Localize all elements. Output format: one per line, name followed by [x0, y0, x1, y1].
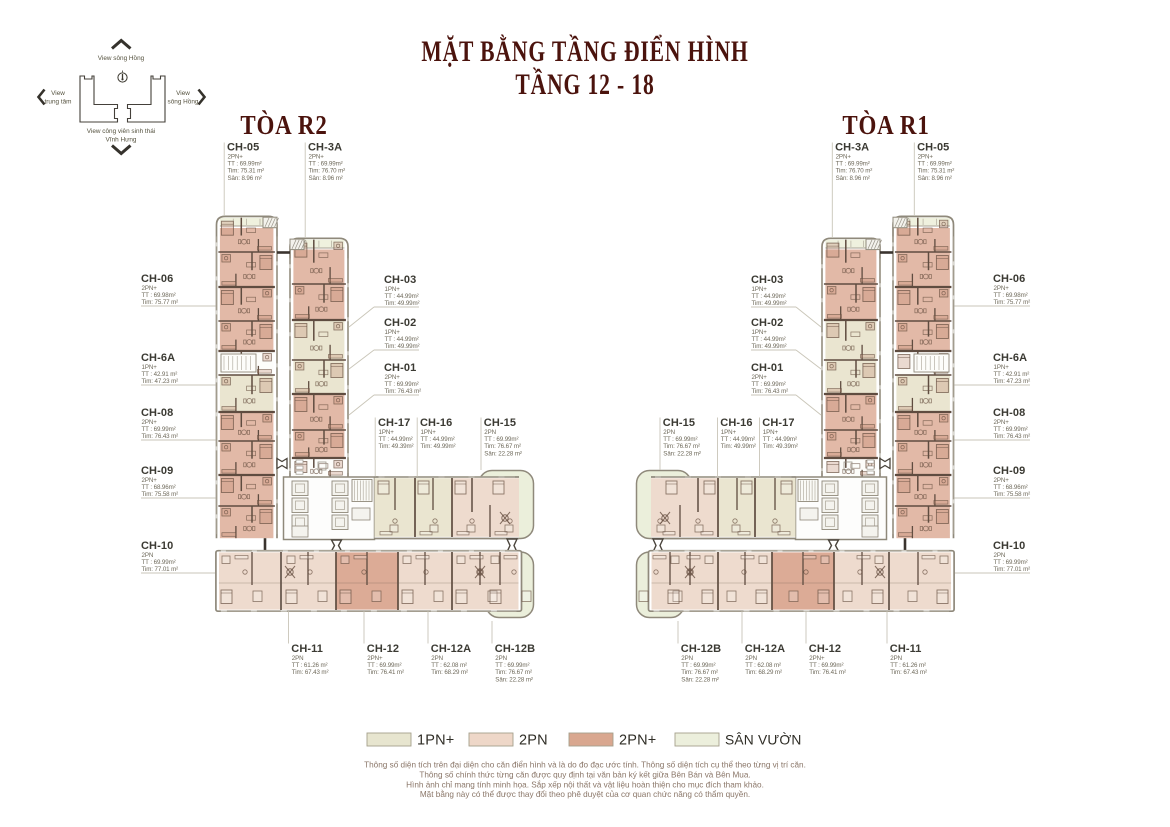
- svg-text:Tim: 76.41 m²: Tim: 76.41 m²: [367, 669, 404, 676]
- svg-text:2PN+: 2PN+: [994, 285, 1010, 292]
- svg-text:2PN: 2PN: [484, 429, 496, 436]
- svg-text:2PN+: 2PN+: [836, 153, 852, 160]
- svg-text:Thông số chính thức từng căn đ: Thông số chính thức từng căn được quy đị…: [419, 770, 750, 779]
- svg-text:TT : 69.99m²: TT : 69.99m²: [994, 426, 1028, 433]
- svg-text:TT : 69.99m²: TT : 69.99m²: [142, 559, 176, 566]
- svg-text:CH-06: CH-06: [141, 273, 173, 285]
- svg-text:CH-09: CH-09: [993, 465, 1025, 477]
- svg-text:Tim: 49.99m²: Tim: 49.99m²: [385, 300, 420, 307]
- svg-text:2PN: 2PN: [681, 655, 693, 662]
- svg-text:Tim: 76.41 m²: Tim: 76.41 m²: [809, 669, 846, 676]
- svg-text:Tim: 49.99m²: Tim: 49.99m²: [385, 343, 420, 350]
- svg-text:Tim: 75.77 m²: Tim: 75.77 m²: [142, 299, 179, 306]
- svg-text:trung tâm: trung tâm: [45, 99, 72, 106]
- svg-text:CH-16: CH-16: [720, 417, 752, 429]
- svg-text:TT : 69.99m²: TT : 69.99m²: [663, 436, 697, 443]
- svg-text:CH-12: CH-12: [809, 643, 841, 655]
- svg-text:CH-03: CH-03: [751, 274, 783, 286]
- svg-text:CH-3A: CH-3A: [835, 142, 869, 154]
- svg-text:1PN+: 1PN+: [142, 364, 158, 371]
- svg-text:CH-12A: CH-12A: [431, 643, 471, 655]
- svg-text:TT : 69.99m²: TT : 69.99m²: [752, 381, 786, 388]
- svg-text:TÒA R1: TÒA R1: [842, 110, 929, 140]
- svg-text:Tim: 76.67 m²: Tim: 76.67 m²: [663, 443, 700, 450]
- svg-text:CH-15: CH-15: [484, 417, 516, 429]
- svg-text:TT : 62.08 m²: TT : 62.08 m²: [745, 662, 781, 669]
- svg-text:1PN+: 1PN+: [721, 429, 737, 436]
- svg-text:TT : 44.99m²: TT : 44.99m²: [421, 436, 455, 443]
- svg-text:1PN+: 1PN+: [385, 286, 401, 293]
- svg-text:CH-17: CH-17: [378, 417, 410, 429]
- svg-text:TT : 69.98m²: TT : 69.98m²: [994, 292, 1028, 299]
- svg-text:Tim: 77.01 m²: Tim: 77.01 m²: [142, 566, 179, 573]
- svg-text:Tim: 76.43 m²: Tim: 76.43 m²: [142, 433, 179, 440]
- svg-text:TT : 68.96m²: TT : 68.96m²: [142, 484, 176, 491]
- svg-text:Tim: 47.23 m²: Tim: 47.23 m²: [142, 378, 179, 385]
- svg-text:TT : 42.91 m²: TT : 42.91 m²: [142, 371, 178, 378]
- svg-text:Sân: 22.28 m²: Sân: 22.28 m²: [681, 676, 719, 683]
- svg-text:CH-08: CH-08: [141, 407, 173, 419]
- svg-text:2PN: 2PN: [142, 552, 154, 559]
- svg-text:CH-01: CH-01: [751, 362, 783, 374]
- svg-text:Tim: 76.43 m²: Tim: 76.43 m²: [994, 433, 1031, 440]
- svg-text:2PN: 2PN: [745, 655, 757, 662]
- svg-text:CH-02: CH-02: [751, 317, 783, 329]
- svg-text:TT : 69.99m²: TT : 69.99m²: [385, 381, 419, 388]
- svg-text:CH-01: CH-01: [384, 362, 416, 374]
- svg-text:1PN+: 1PN+: [763, 429, 779, 436]
- svg-text:Sân: 8.96 m²: Sân: 8.96 m²: [309, 175, 343, 182]
- svg-text:Sân: 22.28 m²: Sân: 22.28 m²: [663, 450, 701, 457]
- svg-text:View sông Hồng: View sông Hồng: [98, 53, 145, 62]
- svg-text:TÒA R2: TÒA R2: [240, 110, 327, 140]
- svg-text:1PN+: 1PN+: [421, 429, 437, 436]
- svg-text:Tim: 76.70 m²: Tim: 76.70 m²: [309, 168, 346, 175]
- svg-text:TT : 44.99m²: TT : 44.99m²: [752, 293, 786, 300]
- svg-text:CH-02: CH-02: [384, 317, 416, 329]
- svg-text:sông Hồng: sông Hồng: [168, 97, 199, 106]
- svg-text:2PN+: 2PN+: [994, 419, 1010, 426]
- svg-text:2PN: 2PN: [292, 655, 304, 662]
- svg-text:TT : 44.99m²: TT : 44.99m²: [385, 336, 419, 343]
- svg-text:1PN+: 1PN+: [994, 364, 1010, 371]
- svg-text:View công viên sinh thái: View công viên sinh thái: [87, 128, 155, 135]
- svg-text:TT : 42.91 m²: TT : 42.91 m²: [994, 371, 1030, 378]
- svg-text:TT : 69.99m²: TT : 69.99m²: [495, 662, 529, 669]
- svg-text:TT : 69.99m²: TT : 69.99m²: [367, 662, 401, 669]
- svg-text:TT : 44.99m²: TT : 44.99m²: [752, 336, 786, 343]
- svg-text:Tim: 49.99m²: Tim: 49.99m²: [752, 343, 787, 350]
- svg-text:Tim: 76.70 m²: Tim: 76.70 m²: [836, 168, 873, 175]
- svg-text:Thông số diện tích trên đại di: Thông số diện tích trên đại diện cho căn…: [364, 760, 806, 770]
- svg-text:View: View: [51, 90, 65, 97]
- svg-text:2PN: 2PN: [890, 655, 902, 662]
- svg-text:CH-11: CH-11: [291, 643, 323, 655]
- svg-text:CH-03: CH-03: [384, 274, 416, 286]
- svg-text:2PN+: 2PN+: [619, 733, 656, 749]
- svg-text:Tim: 49.99m²: Tim: 49.99m²: [721, 443, 756, 450]
- svg-text:Tim: 49.99m²: Tim: 49.99m²: [421, 443, 456, 450]
- svg-text:TT : 69.99m²: TT : 69.99m²: [836, 161, 870, 168]
- svg-text:2PN: 2PN: [519, 733, 548, 749]
- svg-text:CH-06: CH-06: [993, 273, 1025, 285]
- svg-text:1PN+: 1PN+: [379, 429, 395, 436]
- svg-text:CH-12B: CH-12B: [681, 643, 721, 655]
- svg-text:Sân: 22.28 m²: Sân: 22.28 m²: [484, 450, 522, 457]
- svg-text:Tim: 75.58 m²: Tim: 75.58 m²: [994, 491, 1031, 498]
- svg-text:CH-12A: CH-12A: [745, 643, 785, 655]
- svg-text:2PN: 2PN: [495, 655, 507, 662]
- svg-text:1PN+: 1PN+: [752, 329, 768, 336]
- svg-text:Sân: 8.96 m²: Sân: 8.96 m²: [836, 175, 870, 182]
- svg-text:2PN: 2PN: [431, 655, 443, 662]
- svg-text:TT : 69.99m²: TT : 69.99m²: [994, 559, 1028, 566]
- svg-text:TT : 69.99m²: TT : 69.99m²: [484, 436, 518, 443]
- svg-text:Mặt bằng này có thể được thay: Mặt bằng này có thể được thay đổi theo p…: [420, 789, 750, 799]
- svg-text:View: View: [176, 90, 190, 97]
- svg-text:2PN+: 2PN+: [918, 153, 934, 160]
- svg-text:CH-10: CH-10: [993, 540, 1025, 552]
- svg-text:CH-6A: CH-6A: [993, 352, 1027, 364]
- svg-text:TT : 69.99m²: TT : 69.99m²: [142, 426, 176, 433]
- svg-text:Tim: 77.01 m²: Tim: 77.01 m²: [994, 566, 1031, 573]
- svg-text:Tim: 68.29 m²: Tim: 68.29 m²: [431, 669, 468, 676]
- svg-text:Tim: 75.31 m²: Tim: 75.31 m²: [918, 168, 955, 175]
- svg-text:Tim: 75.58 m²: Tim: 75.58 m²: [142, 491, 179, 498]
- svg-text:TT : 44.99m²: TT : 44.99m²: [721, 436, 755, 443]
- svg-text:TT : 44.99m²: TT : 44.99m²: [763, 436, 797, 443]
- svg-text:CH-05: CH-05: [917, 142, 949, 154]
- svg-text:TT : 44.99m²: TT : 44.99m²: [379, 436, 413, 443]
- svg-text:TT : 69.99m²: TT : 69.99m²: [809, 662, 843, 669]
- svg-text:Vĩnh Hưng: Vĩnh Hưng: [106, 137, 137, 144]
- svg-text:TT : 44.99m²: TT : 44.99m²: [385, 293, 419, 300]
- svg-text:CH-6A: CH-6A: [141, 352, 175, 364]
- svg-text:Tim: 76.67 m²: Tim: 76.67 m²: [495, 669, 532, 676]
- svg-text:TT : 69.98m²: TT : 69.98m²: [142, 292, 176, 299]
- svg-text:TT : 61.26 m²: TT : 61.26 m²: [890, 662, 926, 669]
- svg-text:Tim: 67.43 m²: Tim: 67.43 m²: [292, 669, 329, 676]
- svg-text:CH-12: CH-12: [367, 643, 399, 655]
- svg-text:SÂN VƯỜN: SÂN VƯỜN: [725, 732, 802, 748]
- svg-text:2PN+: 2PN+: [367, 655, 383, 662]
- svg-text:CH-05: CH-05: [227, 142, 259, 154]
- svg-text:Tim: 75.31 m²: Tim: 75.31 m²: [228, 168, 265, 175]
- svg-text:Tim: 76.67 m²: Tim: 76.67 m²: [484, 443, 521, 450]
- svg-text:2PN+: 2PN+: [142, 285, 158, 292]
- svg-text:2PN+: 2PN+: [809, 655, 825, 662]
- svg-text:Sân: 22.28 m²: Sân: 22.28 m²: [495, 676, 533, 683]
- svg-text:Tim: 76.67 m²: Tim: 76.67 m²: [681, 669, 718, 676]
- svg-text:1PN+: 1PN+: [417, 733, 454, 749]
- svg-text:2PN: 2PN: [994, 552, 1006, 559]
- svg-text:TT : 62.08 m²: TT : 62.08 m²: [431, 662, 467, 669]
- svg-text:Tim: 75.77 m²: Tim: 75.77 m²: [994, 299, 1031, 306]
- svg-text:TẦNG 12 - 18: TẦNG 12 - 18: [515, 68, 654, 101]
- svg-text:Sân: 8.96 m²: Sân: 8.96 m²: [228, 175, 262, 182]
- svg-text:2PN+: 2PN+: [142, 477, 158, 484]
- svg-text:2PN+: 2PN+: [752, 374, 768, 381]
- svg-text:CH-12B: CH-12B: [495, 643, 535, 655]
- svg-text:TT : 68.96m²: TT : 68.96m²: [994, 484, 1028, 491]
- svg-text:Tim: 76.43 m²: Tim: 76.43 m²: [385, 388, 422, 395]
- svg-text:2PN+: 2PN+: [228, 153, 244, 160]
- svg-text:CH-16: CH-16: [420, 417, 452, 429]
- svg-text:MẶT BẰNG TẦNG ĐIỂN HÌNH: MẶT BẰNG TẦNG ĐIỂN HÌNH: [421, 35, 748, 68]
- svg-text:Tim: 68.29 m²: Tim: 68.29 m²: [745, 669, 782, 676]
- svg-text:Tim: 49.39m²: Tim: 49.39m²: [763, 443, 798, 450]
- svg-text:2PN: 2PN: [663, 429, 675, 436]
- svg-text:1PN+: 1PN+: [385, 329, 401, 336]
- svg-text:TT : 69.99m²: TT : 69.99m²: [681, 662, 715, 669]
- svg-text:CH-10: CH-10: [141, 540, 173, 552]
- svg-text:2PN+: 2PN+: [309, 153, 325, 160]
- svg-text:TT : 61.26 m²: TT : 61.26 m²: [292, 662, 328, 669]
- svg-text:Tim: 76.43 m²: Tim: 76.43 m²: [752, 388, 789, 395]
- svg-text:TT : 69.99m²: TT : 69.99m²: [228, 161, 262, 168]
- svg-text:Tim: 49.99m²: Tim: 49.99m²: [752, 300, 787, 307]
- svg-text:Tim: 67.43 m²: Tim: 67.43 m²: [890, 669, 927, 676]
- svg-text:Tim: 49.39m²: Tim: 49.39m²: [379, 443, 414, 450]
- svg-text:CH-11: CH-11: [890, 643, 922, 655]
- svg-text:TT : 69.99m²: TT : 69.99m²: [309, 161, 343, 168]
- svg-text:2PN+: 2PN+: [994, 477, 1010, 484]
- svg-text:CH-15: CH-15: [663, 417, 695, 429]
- svg-text:CH-09: CH-09: [141, 465, 173, 477]
- svg-text:Sân: 8.96 m²: Sân: 8.96 m²: [918, 175, 952, 182]
- svg-text:Hình ảnh chỉ mang tính minh họ: Hình ảnh chỉ mang tính minh họa. Sắp xếp…: [406, 779, 764, 789]
- svg-text:CH-17: CH-17: [762, 417, 794, 429]
- svg-text:TT : 69.99m²: TT : 69.99m²: [918, 161, 952, 168]
- svg-text:1PN+: 1PN+: [752, 286, 768, 293]
- svg-text:2PN+: 2PN+: [385, 374, 401, 381]
- svg-text:Tim: 47.23 m²: Tim: 47.23 m²: [994, 378, 1031, 385]
- svg-text:CH-08: CH-08: [993, 407, 1025, 419]
- svg-text:CH-3A: CH-3A: [308, 142, 342, 154]
- svg-text:2PN+: 2PN+: [142, 419, 158, 426]
